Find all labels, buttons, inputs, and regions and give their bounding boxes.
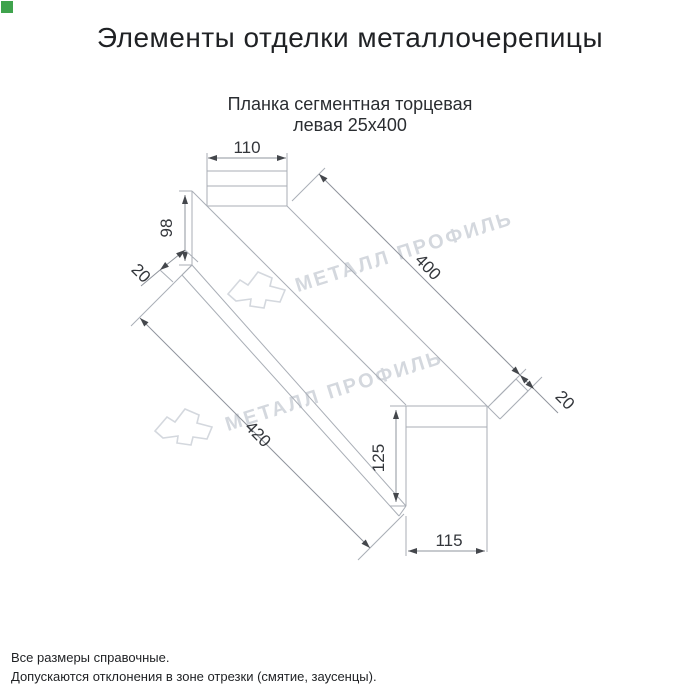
dim-label-20-left: 20 xyxy=(127,260,154,287)
page: { "page": { "title": "Элементы отделки м… xyxy=(0,0,700,700)
dimension-right-height: 125 xyxy=(369,406,406,506)
dimension-top-width: 110 xyxy=(207,138,287,171)
dim-label-125: 125 xyxy=(369,444,388,472)
right-fold-piece-outline xyxy=(488,379,528,419)
dimension-bottom-width: 115 xyxy=(408,531,485,551)
dimension-right-flange: 20 xyxy=(520,375,578,414)
dim-label-20-right: 20 xyxy=(551,387,578,414)
metall-profil-logo-icon xyxy=(228,272,285,308)
dim-label-110: 110 xyxy=(233,138,260,157)
dimension-left-height: 98 xyxy=(157,195,192,265)
watermark-text-upper: МЕТАЛЛ ПРОФИЛЬ xyxy=(293,208,516,297)
watermark-layer: МЕТАЛЛ ПРОФИЛЬ МЕТАЛЛ ПРОФИЛЬ xyxy=(155,208,516,445)
dim-label-115: 115 xyxy=(435,531,462,550)
technical-drawing: МЕТАЛЛ ПРОФИЛЬ МЕТАЛЛ ПРОФИЛЬ xyxy=(0,0,700,700)
top-end-tab-outline xyxy=(207,171,287,206)
footer-note-1: Все размеры справочные. xyxy=(11,648,377,667)
metall-profil-logo-icon xyxy=(155,409,212,445)
dim-label-98: 98 xyxy=(157,219,176,238)
footer-note-2: Допускаются отклонения в зоне отрезки (с… xyxy=(11,667,377,686)
footer-notes: Все размеры справочные. Допускаются откл… xyxy=(11,648,377,686)
